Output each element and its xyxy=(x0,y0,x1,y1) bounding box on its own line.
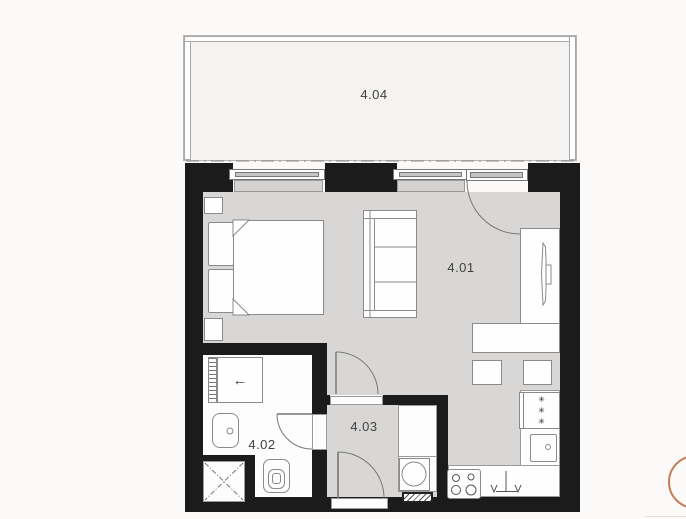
room-label-hallway: 4.03 xyxy=(338,419,390,434)
logo-circle xyxy=(668,455,686,509)
entrance-door-threshold xyxy=(331,498,388,509)
wall-right xyxy=(560,163,580,512)
wall-hallway-top xyxy=(383,395,442,405)
room-label-balcony: 4.04 xyxy=(348,87,400,102)
balcony-door-panel xyxy=(470,172,523,178)
shower-tray xyxy=(203,461,245,502)
washing-machine xyxy=(399,458,430,491)
window-1-sill xyxy=(234,180,323,192)
toilet-drain xyxy=(272,473,281,484)
entrance-doormat xyxy=(402,492,433,503)
room-label-living: 4.01 xyxy=(435,260,487,275)
fridge: ✳ ✳ ✳ xyxy=(523,392,560,429)
stool-1 xyxy=(472,360,502,385)
wall-left xyxy=(185,163,203,512)
wall-top-segment-2 xyxy=(325,163,397,192)
radiator-strip xyxy=(208,357,217,403)
washer-dryer-space: ← xyxy=(217,357,263,403)
nightstand-top xyxy=(204,197,223,214)
direction-arrow-icon: ← xyxy=(218,358,262,402)
balcony-rail-right xyxy=(569,36,576,160)
sofa xyxy=(363,210,417,318)
nightstand-bottom xyxy=(204,318,223,341)
stove xyxy=(447,469,481,499)
dining-table xyxy=(472,323,560,353)
wall-bathroom-top xyxy=(185,343,327,355)
window-1-glass xyxy=(235,172,319,177)
floor-plan-canvas: ✳ ✳ ✳ ← 4.01 4.02 4.03 4.04 xyxy=(0,0,686,519)
room-label-bathroom: 4.02 xyxy=(236,437,288,452)
freezer-stars-icon: ✳ ✳ ✳ xyxy=(524,393,559,428)
balcony-rail-left xyxy=(184,36,191,160)
bed-pillow-2 xyxy=(208,269,234,313)
logo-underline xyxy=(645,516,686,517)
bed-pillow-1 xyxy=(208,222,234,266)
window-2-glass xyxy=(399,172,462,177)
washbasin xyxy=(212,413,239,448)
tv-cabinet xyxy=(520,228,560,325)
hallway-door-threshold xyxy=(330,396,383,405)
closet-shelf-line xyxy=(398,456,437,457)
window-2-sill xyxy=(397,180,465,192)
bed-mattress xyxy=(233,220,324,315)
kitchen-sink-right xyxy=(530,434,557,462)
bathroom-door-opening xyxy=(312,414,327,450)
wall-top-segment-1 xyxy=(185,163,233,192)
stool-2 xyxy=(523,360,552,385)
balcony-rail-top xyxy=(184,36,576,42)
